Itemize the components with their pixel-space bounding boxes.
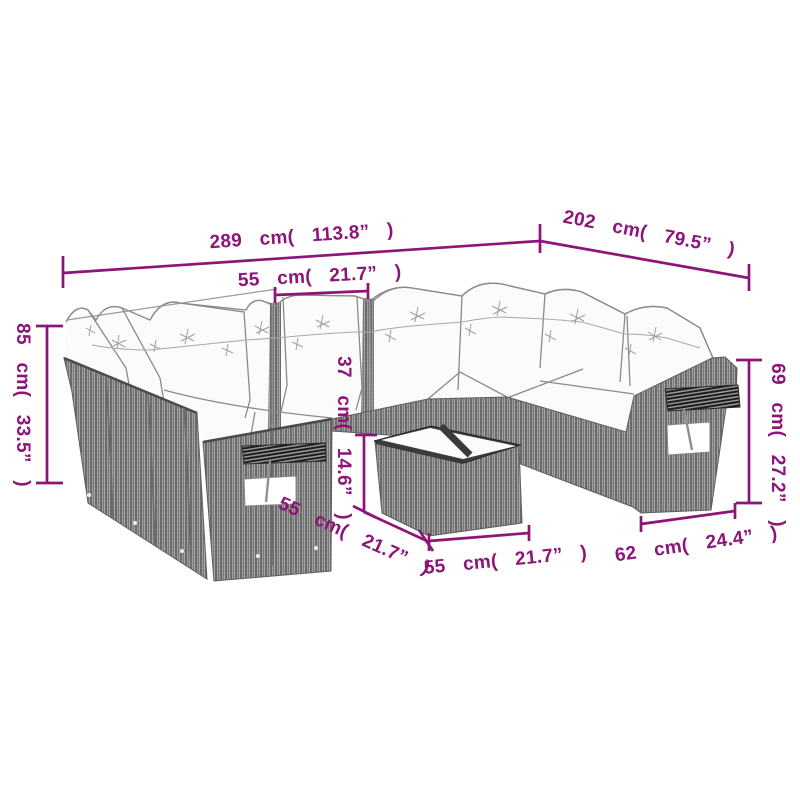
svg-text:37 cm( 14.6” ): 37 cm( 14.6” ) <box>333 356 354 520</box>
svg-text:69 cm( 27.2” ): 69 cm( 27.2” ) <box>767 363 788 527</box>
svg-text:85 cm( 33.5” ): 85 cm( 33.5” ) <box>12 323 33 487</box>
